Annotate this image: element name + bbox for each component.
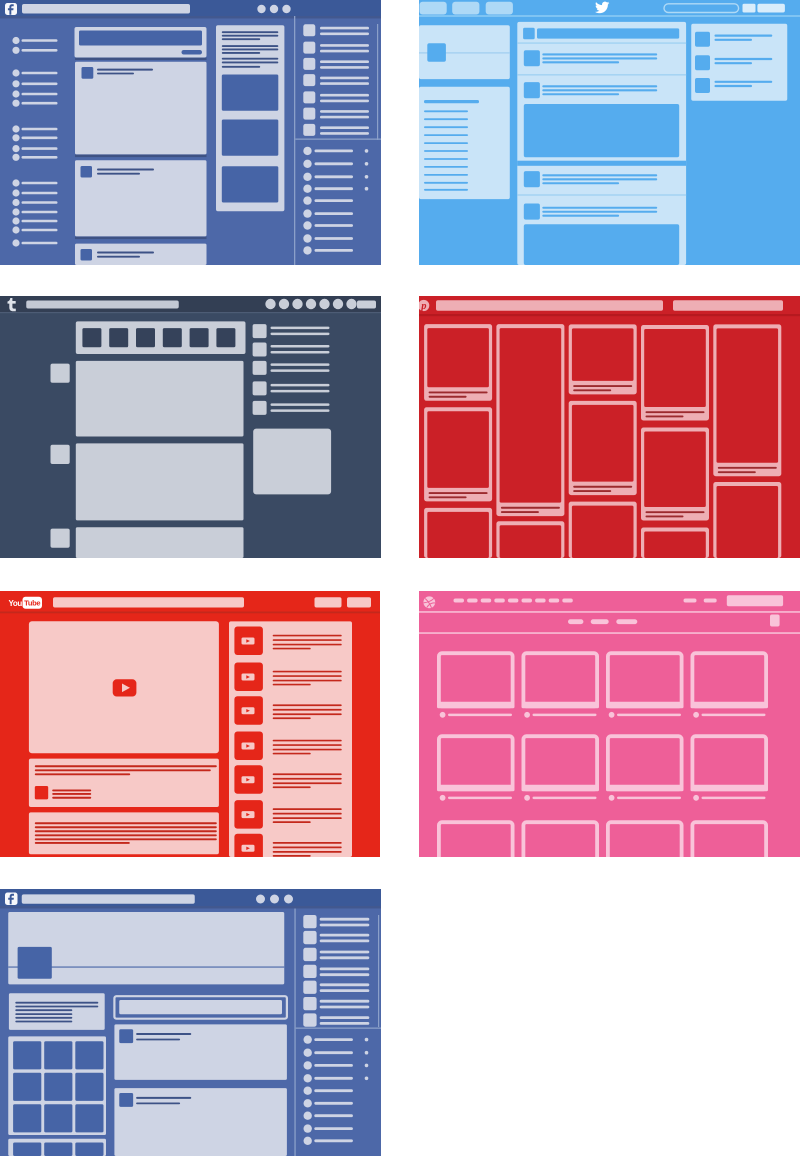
svg-text:p: p [420, 301, 426, 312]
svg-text:Tube: Tube [24, 599, 40, 608]
svg-text:You: You [9, 599, 23, 608]
